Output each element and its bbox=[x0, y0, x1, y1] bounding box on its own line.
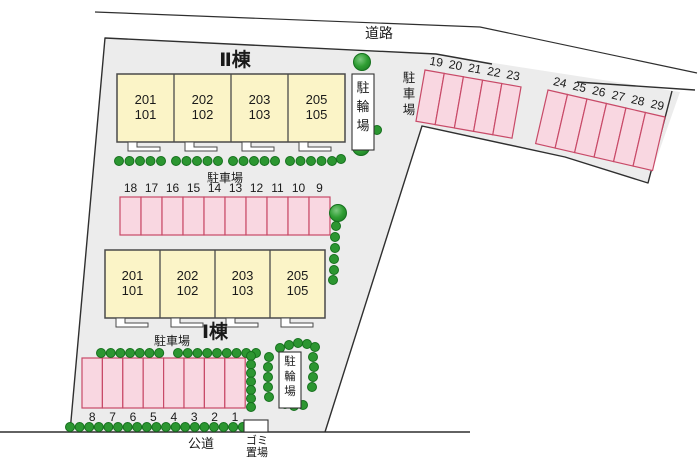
tree-icon bbox=[264, 363, 273, 372]
tree-icon bbox=[264, 383, 273, 392]
stall-number: 22 bbox=[486, 64, 502, 80]
tree-icon bbox=[330, 266, 339, 275]
unit-label: 202102 bbox=[192, 92, 214, 122]
tree-icon bbox=[247, 369, 256, 378]
parking-stall bbox=[123, 358, 143, 408]
stall-number: 12 bbox=[250, 181, 264, 195]
stall-number: 11 bbox=[271, 181, 284, 195]
parking-stall bbox=[82, 358, 102, 408]
tree-icon bbox=[115, 157, 124, 166]
parking-stall bbox=[204, 358, 224, 408]
stall-number: 17 bbox=[145, 181, 159, 195]
tree-icon bbox=[229, 423, 238, 432]
tree-icon bbox=[104, 423, 113, 432]
parking-label-bottom: 駐車場 bbox=[154, 333, 190, 348]
tree-icon bbox=[265, 353, 274, 362]
building: 201101202102203103205105 bbox=[117, 74, 345, 151]
tree-icon bbox=[171, 423, 180, 432]
parking-label-middle: 駐車場 bbox=[207, 170, 243, 185]
tree-icon bbox=[193, 349, 202, 358]
tree-icon bbox=[265, 393, 274, 402]
stall-number: 10 bbox=[292, 181, 306, 195]
tree-icon bbox=[152, 423, 161, 432]
unit-label: 201101 bbox=[135, 92, 157, 122]
bush-icon bbox=[354, 54, 371, 71]
tree-icon bbox=[264, 373, 273, 382]
stall-number: 23 bbox=[505, 67, 521, 83]
unit-label: 202102 bbox=[177, 268, 199, 298]
tree-icon bbox=[181, 423, 190, 432]
tree-icon bbox=[309, 373, 318, 382]
unit-label: 205105 bbox=[306, 92, 328, 122]
parking-stall bbox=[164, 358, 184, 408]
stall-number: 3 bbox=[191, 410, 198, 424]
parking-stall bbox=[267, 197, 288, 235]
tree-icon bbox=[328, 157, 337, 166]
tree-icon bbox=[210, 423, 219, 432]
building: 201101202102203103205105 bbox=[105, 250, 325, 327]
tree-icon bbox=[317, 157, 326, 166]
stall-number: 1 bbox=[232, 410, 239, 424]
stall-number: 20 bbox=[448, 57, 464, 73]
tree-icon bbox=[232, 349, 241, 358]
tree-icon bbox=[125, 157, 134, 166]
tree-icon bbox=[190, 423, 199, 432]
tree-icon bbox=[229, 157, 238, 166]
parking-stall bbox=[102, 358, 122, 408]
parking-label-right: 駐車場 bbox=[403, 70, 416, 117]
stall-number: 6 bbox=[130, 410, 137, 424]
parking-stall bbox=[120, 197, 141, 235]
tree-icon bbox=[146, 157, 155, 166]
stall-number: 5 bbox=[150, 410, 157, 424]
parking-stall bbox=[183, 197, 204, 235]
unit-label: 201101 bbox=[122, 268, 144, 298]
tree-icon bbox=[182, 157, 191, 166]
tree-icon bbox=[310, 363, 319, 372]
tree-icon bbox=[294, 339, 303, 348]
tree-icon bbox=[309, 353, 318, 362]
tree-icon bbox=[136, 157, 145, 166]
parking-stall bbox=[225, 358, 245, 408]
tree-icon bbox=[247, 403, 256, 412]
bush-icon bbox=[330, 205, 347, 222]
road-label: 道路 bbox=[365, 25, 393, 41]
tree-icon bbox=[155, 349, 164, 358]
tree-icon bbox=[94, 423, 103, 432]
tree-icon bbox=[114, 423, 123, 432]
bicycle-parking-top-label: 駐輪場 bbox=[356, 80, 369, 133]
tree-icon bbox=[330, 255, 339, 264]
tree-icon bbox=[75, 423, 84, 432]
parking-stall bbox=[288, 197, 309, 235]
garbage-area-box bbox=[244, 420, 268, 432]
tree-icon bbox=[286, 157, 295, 166]
parking-stall bbox=[204, 197, 225, 235]
unit-label: 203103 bbox=[249, 92, 271, 122]
tree-icon bbox=[331, 233, 340, 242]
tree-icon bbox=[106, 349, 115, 358]
parking-stall bbox=[143, 358, 163, 408]
parking-stall bbox=[184, 358, 204, 408]
tree-icon bbox=[126, 349, 135, 358]
stall-number: 4 bbox=[170, 410, 177, 424]
tree-icon bbox=[203, 157, 212, 166]
tree-icon bbox=[172, 157, 181, 166]
building-1-title: Ⅰ棟 bbox=[202, 320, 229, 343]
tree-icon bbox=[247, 377, 256, 386]
tree-icon bbox=[203, 349, 212, 358]
tree-icon bbox=[174, 349, 183, 358]
tree-icon bbox=[308, 383, 317, 392]
tree-icon bbox=[247, 352, 256, 361]
site-plan-page: 1817161514131211109876543211920212223242… bbox=[0, 0, 700, 460]
tree-icon bbox=[200, 423, 209, 432]
tree-icon bbox=[145, 349, 154, 358]
parking-stall bbox=[162, 197, 183, 235]
parking-stall bbox=[141, 197, 162, 235]
stall-number: 2 bbox=[211, 410, 218, 424]
stall-number: 15 bbox=[187, 181, 201, 195]
tree-icon bbox=[247, 386, 256, 395]
public-road-label: 公道 bbox=[188, 436, 214, 451]
tree-icon bbox=[329, 276, 338, 285]
tree-icon bbox=[239, 157, 248, 166]
bicycle-parking-bottom-label: 駐輪場 bbox=[284, 354, 296, 398]
stall-number: 16 bbox=[166, 181, 180, 195]
tree-icon bbox=[219, 423, 228, 432]
tree-icon bbox=[133, 423, 142, 432]
tree-icon bbox=[331, 244, 340, 253]
tree-icon bbox=[222, 349, 231, 358]
tree-icon bbox=[162, 423, 171, 432]
tree-icon bbox=[214, 157, 223, 166]
tree-icon bbox=[250, 157, 259, 166]
stall-number: 19 bbox=[429, 54, 445, 70]
site-plan: 1817161514131211109876543211920212223242… bbox=[0, 0, 700, 460]
stall-number: 8 bbox=[89, 410, 96, 424]
tree-icon bbox=[247, 394, 256, 403]
unit-label: 205105 bbox=[287, 268, 309, 298]
tree-icon bbox=[85, 423, 94, 432]
tree-icon bbox=[116, 349, 125, 358]
tree-icon bbox=[271, 157, 280, 166]
tree-icon bbox=[123, 423, 132, 432]
tree-icon bbox=[142, 423, 151, 432]
building-2-title: Ⅱ棟 bbox=[219, 48, 252, 71]
garbage-label-line1: ゴミ bbox=[246, 433, 268, 447]
tree-icon bbox=[135, 349, 144, 358]
tree-icon bbox=[213, 349, 222, 358]
parking-stall bbox=[225, 197, 246, 235]
tree-icon bbox=[332, 222, 341, 231]
parking-stall bbox=[309, 197, 330, 235]
tree-icon bbox=[307, 157, 316, 166]
stall-number: 21 bbox=[467, 61, 483, 77]
tree-icon bbox=[247, 360, 256, 369]
tree-icon bbox=[157, 157, 166, 166]
tree-icon bbox=[296, 157, 305, 166]
tree-icon bbox=[311, 343, 320, 352]
tree-icon bbox=[97, 349, 106, 358]
stall-number: 7 bbox=[109, 410, 116, 424]
tree-icon bbox=[183, 349, 192, 358]
stall-number: 9 bbox=[316, 181, 323, 195]
tree-icon bbox=[337, 155, 346, 164]
stall-number: 18 bbox=[124, 181, 138, 195]
tree-icon bbox=[260, 157, 269, 166]
parking-stall bbox=[246, 197, 267, 235]
tree-icon bbox=[66, 423, 75, 432]
garbage-label-line2: 置場 bbox=[246, 446, 268, 459]
tree-icon bbox=[285, 341, 294, 350]
tree-icon bbox=[193, 157, 202, 166]
unit-label: 203103 bbox=[232, 268, 254, 298]
tree-icon bbox=[276, 344, 285, 353]
